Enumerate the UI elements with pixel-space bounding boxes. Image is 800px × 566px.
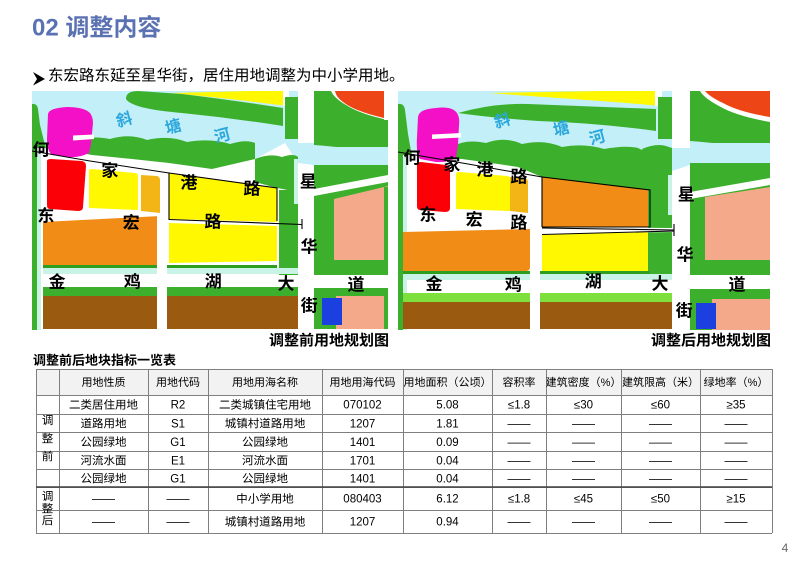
- svg-text:——: ——: [649, 473, 673, 485]
- svg-text:1701: 1701: [350, 455, 376, 467]
- svg-text:——: ——: [725, 418, 749, 430]
- svg-text:≤60: ≤60: [651, 400, 670, 412]
- svg-text:02: 02: [32, 15, 59, 42]
- svg-text:1207: 1207: [350, 517, 376, 529]
- svg-text:——: ——: [649, 418, 673, 430]
- svg-text:≤30: ≤30: [574, 400, 593, 412]
- svg-text:——: ——: [508, 473, 532, 485]
- svg-text:——: ——: [92, 494, 116, 506]
- svg-text:——: ——: [508, 517, 532, 529]
- svg-text:——: ——: [572, 455, 596, 467]
- svg-text:——: ——: [649, 517, 673, 529]
- svg-text:——: ——: [725, 517, 749, 529]
- svg-text:≤1.8: ≤1.8: [508, 494, 530, 506]
- svg-text:——: ——: [508, 437, 532, 449]
- svg-text:4: 4: [782, 541, 789, 555]
- svg-text:G1: G1: [170, 473, 185, 485]
- svg-text:——: ——: [649, 455, 673, 467]
- svg-text:——: ——: [508, 455, 532, 467]
- svg-text:——: ——: [725, 473, 749, 485]
- svg-text:S1: S1: [171, 418, 185, 430]
- svg-text:——: ——: [92, 517, 116, 529]
- svg-text:≤45: ≤45: [574, 494, 593, 506]
- svg-text:≥15: ≥15: [726, 494, 745, 506]
- svg-text:1401: 1401: [350, 473, 376, 485]
- svg-text:0.09: 0.09: [436, 437, 458, 449]
- svg-text:——: ——: [572, 437, 596, 449]
- svg-text:%: %: [601, 377, 611, 389]
- svg-text:1.81: 1.81: [436, 418, 458, 430]
- svg-text:——: ——: [167, 517, 191, 529]
- svg-text:R2: R2: [171, 400, 186, 412]
- svg-text:≥35: ≥35: [726, 400, 745, 412]
- svg-text:G1: G1: [170, 437, 185, 449]
- svg-text:——: ——: [725, 437, 749, 449]
- svg-text:——: ——: [725, 455, 749, 467]
- svg-text:——: ——: [572, 418, 596, 430]
- svg-text:——: ——: [508, 418, 532, 430]
- svg-text:≤1.8: ≤1.8: [508, 400, 530, 412]
- svg-text:≤50: ≤50: [651, 494, 670, 506]
- svg-text:6.12: 6.12: [436, 494, 458, 506]
- svg-text:0.94: 0.94: [436, 517, 459, 529]
- svg-text:0.04: 0.04: [436, 473, 459, 485]
- svg-text:080403: 080403: [343, 494, 381, 506]
- svg-text:070102: 070102: [343, 400, 381, 412]
- svg-text:——: ——: [572, 517, 596, 529]
- svg-text:——: ——: [167, 494, 191, 506]
- svg-text:5.08: 5.08: [436, 400, 458, 412]
- svg-text:%: %: [748, 377, 758, 389]
- svg-text:——: ——: [572, 473, 596, 485]
- svg-text:1207: 1207: [350, 418, 376, 430]
- svg-text:1401: 1401: [350, 437, 376, 449]
- svg-text:——: ——: [649, 437, 673, 449]
- svg-text:E1: E1: [171, 455, 185, 467]
- svg-text:0.04: 0.04: [436, 455, 459, 467]
